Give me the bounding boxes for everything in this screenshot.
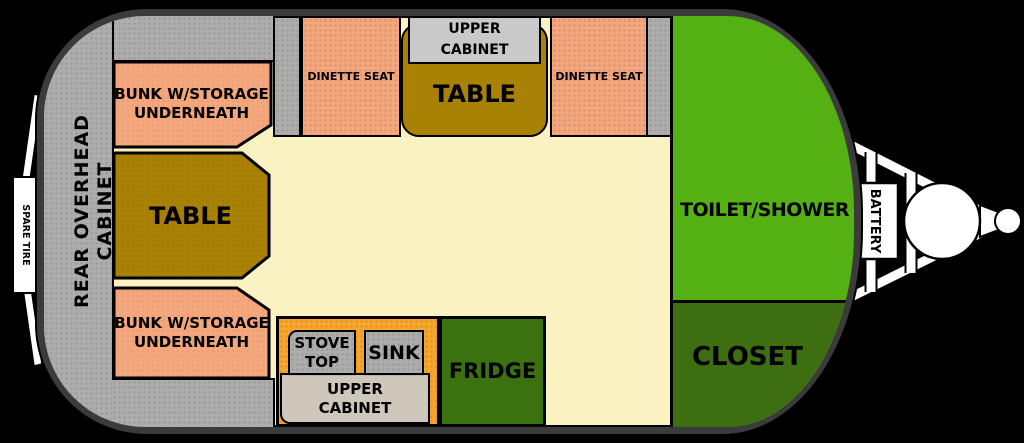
closet: CLOSET bbox=[673, 300, 854, 427]
kitchen-counter: STOVE TOP SINK UPPER CABINET bbox=[276, 316, 440, 427]
sink: SINK bbox=[364, 330, 424, 376]
bunk-top-label: BUNK W/STORAGE UNDERNEATH bbox=[112, 60, 271, 147]
battery-label: BATTERY bbox=[867, 189, 882, 254]
trailer-floorplan: SPARE TIRE BATTERY REAR OVERHEAD CABINET bbox=[0, 0, 1024, 443]
stove-top: STOVE TOP bbox=[288, 330, 356, 376]
table-left-label: TABLE bbox=[112, 153, 269, 278]
spare-tire-label: SPARE TIRE bbox=[20, 204, 31, 265]
hitch-assembly: BATTERY bbox=[835, 130, 1024, 315]
upper-cabinet-bottom: UPPER CABINET bbox=[280, 373, 430, 424]
dinette-side-cabinet-left bbox=[273, 16, 301, 137]
rear-overhead-cabinet-label: REAR OVERHEAD CABINET bbox=[81, 61, 107, 361]
propane-tank bbox=[904, 183, 980, 259]
fridge: FRIDGE bbox=[439, 316, 546, 427]
bunk-bottom-label: BUNK W/STORAGE UNDERNEATH bbox=[112, 288, 271, 378]
dinette-side-cabinet-right bbox=[646, 16, 672, 137]
dinette-table-label: TABLE bbox=[401, 72, 548, 116]
toilet-shower-room: TOILET/SHOWER CLOSET bbox=[670, 16, 854, 427]
trailer-interior-floor: REAR OVERHEAD CABINET BUNK W/STORAGE UND bbox=[44, 16, 854, 427]
rear-overhead-cabinet-bottom bbox=[112, 378, 275, 427]
hitch-ball bbox=[995, 208, 1021, 234]
rear-overhead-cabinet-top bbox=[112, 16, 275, 62]
toilet-shower-label: TOILET/SHOWER bbox=[673, 199, 854, 222]
dinette-seat-right: DINETTE SEAT bbox=[550, 16, 648, 137]
upper-cabinet-top: UPPER CABINET bbox=[408, 16, 541, 64]
trailer-body-outline: REAR OVERHEAD CABINET BUNK W/STORAGE UND bbox=[35, 7, 863, 436]
dinette-seat-left: DINETTE SEAT bbox=[301, 16, 401, 137]
